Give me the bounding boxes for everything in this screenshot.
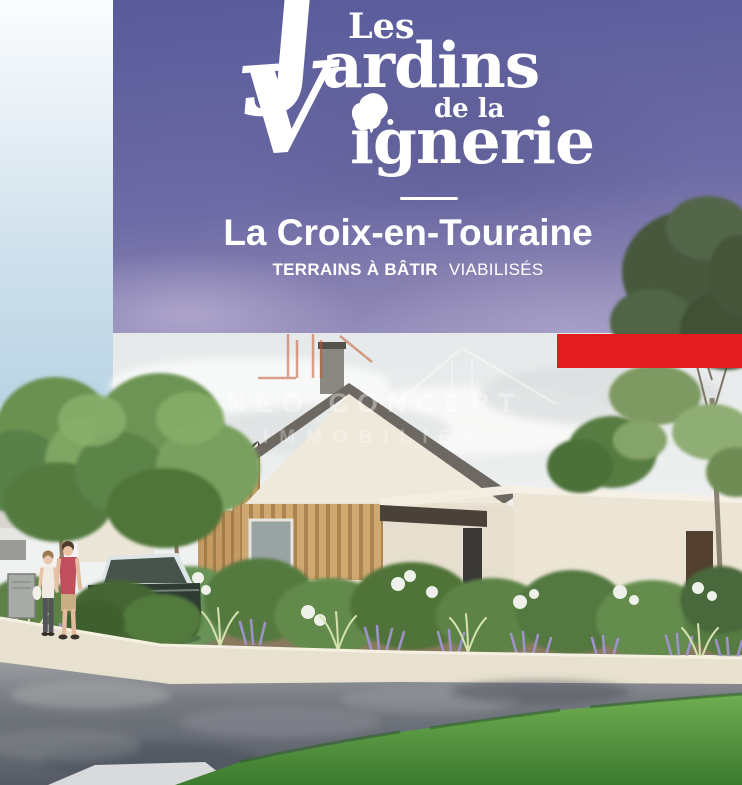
utility-box xyxy=(8,574,35,618)
render-scene xyxy=(0,0,742,785)
poster: J V Les ardins de la ignerie La Croix-en… xyxy=(0,0,742,785)
red-accent-bar xyxy=(557,334,742,368)
